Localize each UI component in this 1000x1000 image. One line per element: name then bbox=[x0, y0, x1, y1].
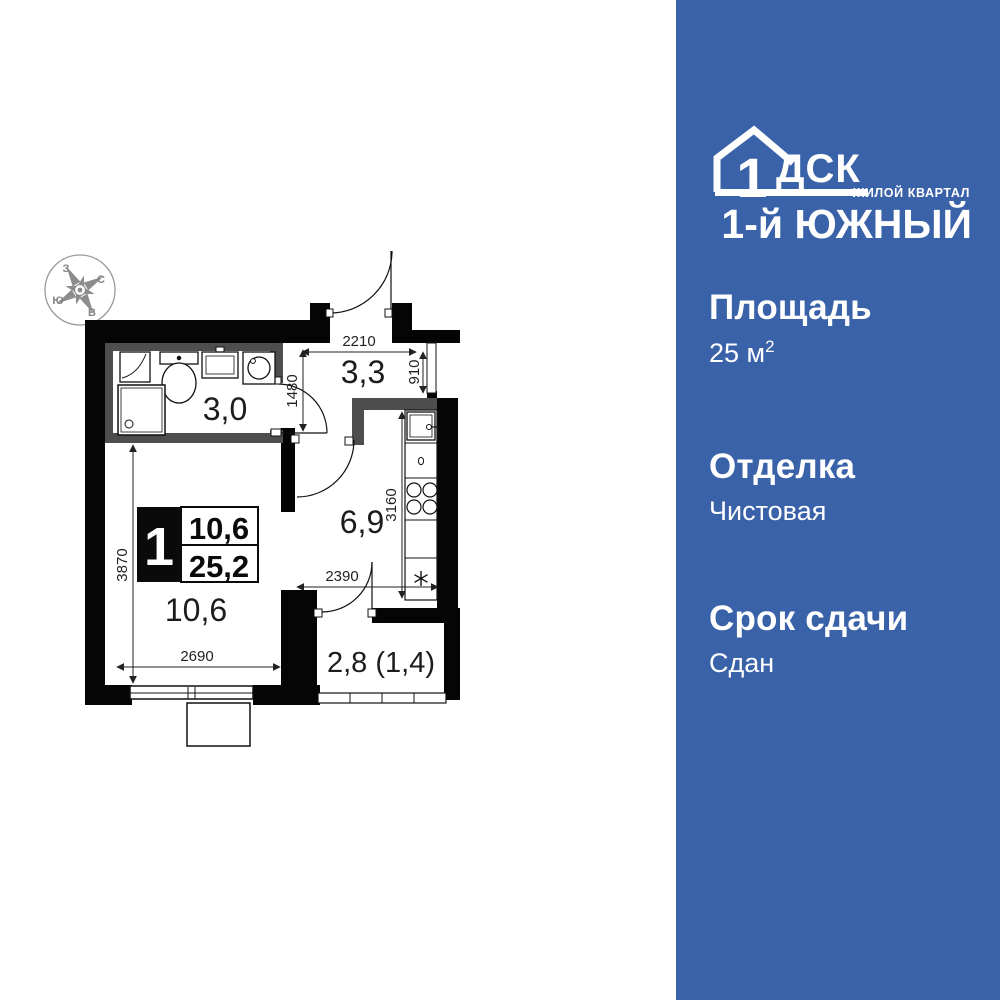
hall-window bbox=[427, 343, 436, 393]
finish-label: Отделка bbox=[709, 447, 855, 487]
section-finish: Отделка Чистовая bbox=[709, 447, 855, 527]
badge-room-count: 1 bbox=[144, 517, 174, 577]
cabinet-handle bbox=[418, 457, 423, 464]
dim-living-width: 2690 bbox=[180, 648, 213, 665]
section-deadline: Срок сдачи Сдан bbox=[709, 599, 908, 679]
compass-east-label: В bbox=[88, 307, 96, 319]
room-label-kitchen: 6,9 bbox=[340, 504, 384, 540]
logo-tagline: ЖИЛОЙ КВАРТАЛ bbox=[852, 185, 970, 200]
compass-icon: З С В Ю bbox=[43, 253, 117, 327]
logo-number: 1 bbox=[736, 146, 767, 209]
area-value-sup: 2 bbox=[765, 337, 774, 356]
corner-shelf bbox=[120, 352, 150, 382]
dim-living-depth: 3870 bbox=[114, 548, 131, 581]
dim-kitchen-width: 2390 bbox=[325, 568, 358, 585]
washing-machine bbox=[243, 352, 275, 384]
badge-living-area: 10,6 bbox=[189, 511, 249, 546]
info-panel: 1 ДСК ЖИЛОЙ КВАРТАЛ 1-й ЮЖНЫЙ Площадь 25… bbox=[676, 0, 1000, 1000]
finish-value: Чистовая bbox=[709, 496, 855, 527]
listing-card: З С В Ю bbox=[0, 0, 1000, 1000]
area-label: Площадь bbox=[709, 288, 872, 328]
room-label-living: 10,6 bbox=[165, 592, 227, 628]
room-label-hallway: 3,3 bbox=[341, 354, 385, 390]
room-label-bathroom: 3,0 bbox=[203, 391, 247, 427]
area-value-text: 25 м bbox=[709, 338, 765, 368]
shower-tray bbox=[118, 385, 165, 435]
compass-west-label: З bbox=[63, 263, 70, 275]
balcony-slab bbox=[187, 703, 250, 746]
kitchen-fixtures bbox=[405, 410, 437, 600]
sink bbox=[202, 347, 238, 378]
area-badge: 1 10,6 25,2 bbox=[137, 507, 258, 584]
floorplan: З С В Ю bbox=[0, 0, 676, 1000]
dim-hall-window: 910 bbox=[406, 359, 423, 384]
deadline-label: Срок сдачи bbox=[709, 599, 908, 639]
bathroom-fixtures bbox=[118, 347, 275, 435]
kitchen-sink bbox=[407, 412, 437, 440]
dim-hall-width: 2210 bbox=[342, 333, 375, 350]
kitchen-door bbox=[291, 435, 354, 497]
brand-logo: 1 ДСК ЖИЛОЙ КВАРТАЛ 1-й ЮЖНЫЙ bbox=[676, 0, 1000, 260]
section-area: Площадь 25 м2 bbox=[709, 288, 872, 369]
dim-kitchen-depth: 3160 bbox=[383, 488, 400, 521]
dim-bath-wall: 1480 bbox=[284, 374, 301, 407]
compass-south-label: Ю bbox=[52, 295, 63, 307]
deadline-value: Сдан bbox=[709, 648, 908, 679]
entrance-door bbox=[326, 251, 392, 317]
compass-north-label: С bbox=[97, 274, 105, 286]
logo-letters: ДСК bbox=[776, 147, 861, 191]
badge-total-area: 25,2 bbox=[189, 549, 249, 584]
room-label-balcony: 2,8 (1,4) bbox=[327, 647, 435, 679]
project-name: 1-й ЮЖНЫЙ bbox=[721, 201, 972, 247]
area-value: 25 м2 bbox=[709, 337, 872, 369]
